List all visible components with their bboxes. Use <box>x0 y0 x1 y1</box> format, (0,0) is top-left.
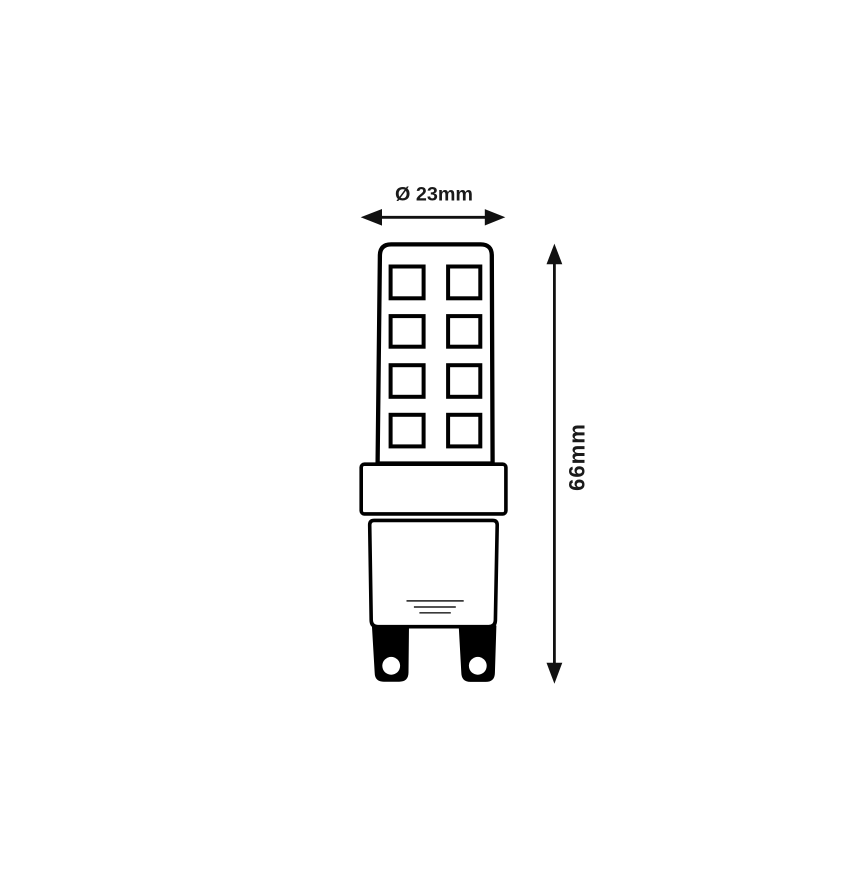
svg-text:66mm: 66mm <box>565 423 590 491</box>
svg-text:Ø 23mm: Ø 23mm <box>395 184 473 206</box>
